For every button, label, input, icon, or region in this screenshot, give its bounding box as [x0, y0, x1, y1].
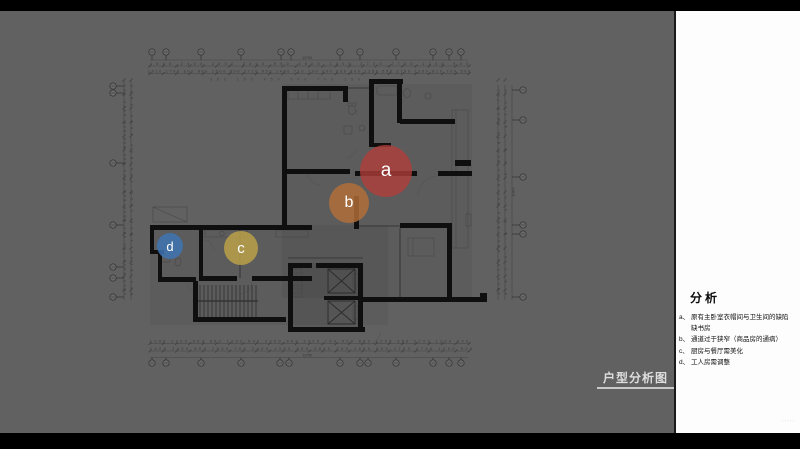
- analysis-title: 分析: [690, 289, 800, 306]
- marker-a: a: [360, 145, 412, 197]
- item-key: b、: [679, 335, 691, 346]
- marker-d: d: [157, 233, 183, 259]
- item-text: 工人房需调整: [691, 358, 797, 369]
- item-text: 原有主卧室衣帽间与卫生间的缺陷 缺书房: [691, 313, 797, 334]
- slide: 12750 1000 2400 2900 2400 900 3800 1400 …: [0, 0, 800, 449]
- analysis-item-c: c、 厨房与餐厅需美化: [679, 347, 797, 358]
- analysis-list: a、 原有主卧室衣帽间与卫生间的缺陷 缺书房 b、 通道过于狭窄（商品房的通病）…: [679, 313, 797, 369]
- item-text: 通道过于狭窄（商品房的通病）: [691, 335, 797, 346]
- analysis-item-b: b、 通道过于狭窄（商品房的通病）: [679, 335, 797, 346]
- analysis-panel: 分析 a、 原有主卧室衣帽间与卫生间的缺陷 缺书房 b、 通道过于狭窄（商品房的…: [674, 11, 800, 433]
- marker-b: b: [329, 183, 369, 223]
- analysis-item-d: d、 工人房需调整: [679, 358, 797, 369]
- watermark: ·····: [782, 418, 795, 424]
- item-text: 厨房与餐厅需美化: [691, 347, 797, 358]
- item-key: d、: [679, 358, 691, 369]
- item-key: a、: [679, 313, 691, 334]
- item-key: c、: [679, 347, 691, 358]
- top-letterbox-bar: [0, 0, 800, 11]
- drawing-canvas: [0, 11, 676, 433]
- bottom-letterbox-bar: [0, 433, 800, 449]
- marker-c: c: [224, 231, 258, 265]
- analysis-item-a: a、 原有主卧室衣帽间与卫生间的缺陷 缺书房: [679, 313, 797, 334]
- plan-title: 户型分析图: [597, 371, 674, 389]
